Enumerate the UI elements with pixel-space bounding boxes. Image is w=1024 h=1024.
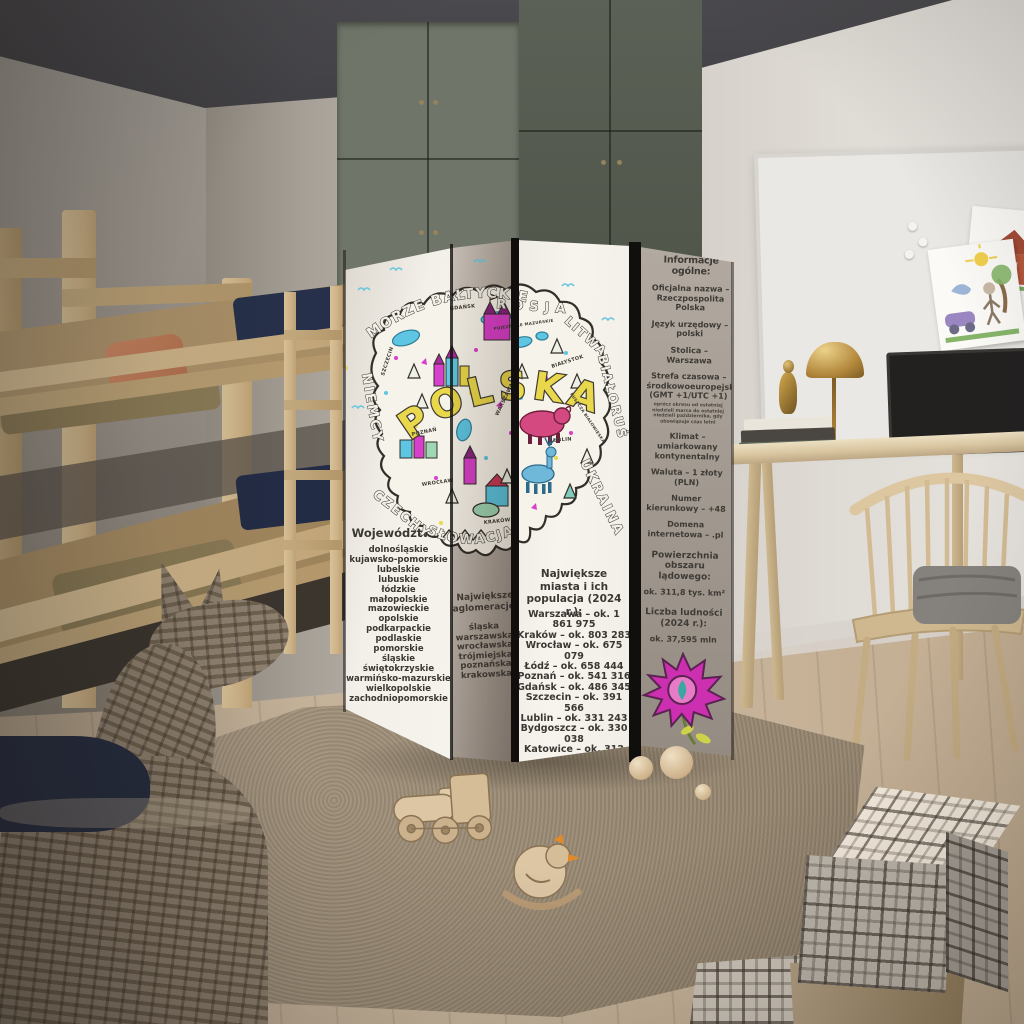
info-fact: Stolica – Warszawa <box>647 345 731 366</box>
info-fact: Numer kierunkowy – +48 <box>644 493 728 514</box>
spindle-chair <box>845 448 1024 768</box>
info-fact: Oficjalna nazwa – Rzeczpospolita Polska <box>648 283 733 314</box>
kids-room-photo: Województwa: dolnośląskiekujawsko-pomors… <box>0 0 1024 1024</box>
ladder-rung <box>284 330 342 340</box>
divider-hinge <box>450 244 453 760</box>
wooden-ball <box>695 784 711 800</box>
magnet <box>908 222 917 231</box>
wooden-ball <box>660 746 693 779</box>
divider-panel-info: Informacje ogólne: Oficjalna nazwa – Rze… <box>640 245 732 761</box>
divider-edge <box>731 262 734 760</box>
miasto-item: Warszawa – ok. 1 861 975 <box>517 610 631 631</box>
rocking-duck-toy <box>492 830 592 922</box>
aglomeracje-list: śląskawarszawskawrocławskatrójmiejskapoz… <box>451 621 519 682</box>
magnet <box>905 250 914 259</box>
wicker-unicorn-basket <box>0 540 310 1024</box>
map-label-ukraina: UKRAINA <box>576 457 627 539</box>
magnet <box>918 237 927 246</box>
info-fact: Język urzędowy – polski <box>648 319 732 340</box>
info-fine-print: oprócz okresu od ostatniej niedzieli mar… <box>650 402 726 426</box>
divider-hinge <box>629 242 641 762</box>
miasto-item: Szczecin – ok. 391 566 <box>517 693 631 714</box>
ladder-rung <box>284 400 342 410</box>
wooden-train-toy <box>388 760 508 860</box>
info-facts-a: Oficjalna nazwa – Rzeczpospolita PolskaJ… <box>642 283 736 402</box>
poland-doodle-map: POLSKA MORZE BAŁTYCKIE ROSJA LITWA BIAŁO… <box>346 258 631 580</box>
population-header: Liczba ludności (2024 r.): <box>642 607 726 630</box>
area-header: Powierzchnia obszaru lądowego: <box>642 550 727 583</box>
box-front <box>798 855 955 993</box>
info-fact: Waluta – 1 złoty (PLN) <box>644 467 728 488</box>
brass-figurine <box>779 372 797 414</box>
divider-hinge <box>511 238 519 762</box>
basket-rim-highlight <box>0 798 250 828</box>
info-fact: Strefa czasowa – środkowoeuropejska (GMT… <box>646 371 731 402</box>
brass-figurine-head <box>783 360 794 373</box>
folk-flower-icon <box>635 651 729 761</box>
kids-drawing-figure <box>928 239 1024 351</box>
wooden-ball <box>629 756 653 780</box>
info-facts-b: Klimat – umiarkowany kontynentalnyWaluta… <box>639 431 733 540</box>
divider-edge <box>343 250 346 712</box>
population-value: ok. 37,595 mln <box>637 634 729 645</box>
info-fact: Domena internetowa – .pl <box>643 520 727 541</box>
plaid-box-large <box>780 780 1024 1024</box>
aglomeracja-item: krakowska <box>454 669 519 682</box>
box-side <box>946 832 1008 992</box>
info-fact: Klimat – umiarkowany kontynentalny <box>645 431 730 462</box>
bed-beam <box>0 258 96 278</box>
wojewodztwo-item: zachodniopomorskie <box>345 695 452 705</box>
miasto-item: Bydgoszcz – ok. 330 038 <box>517 724 631 745</box>
ladder-rung <box>284 470 342 480</box>
area-value: ok. 311,8 tys. km² <box>638 587 730 598</box>
miasto-item: Wrocław – ok. 675 079 <box>517 641 631 662</box>
